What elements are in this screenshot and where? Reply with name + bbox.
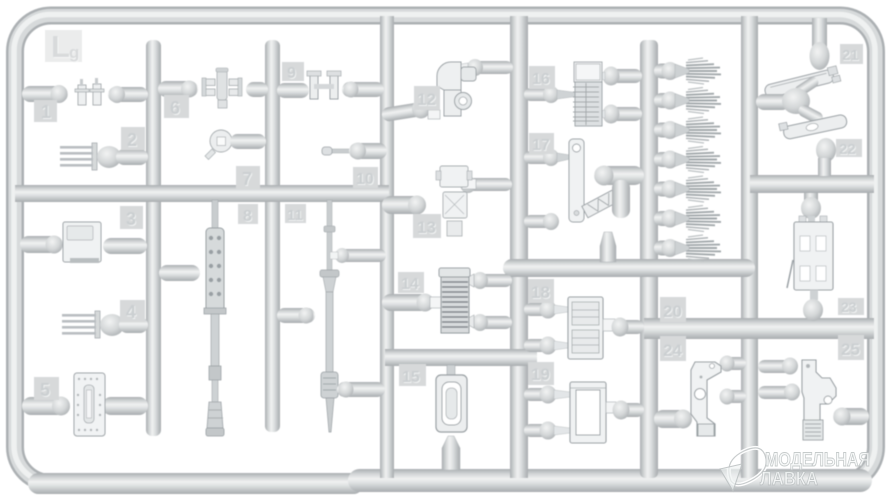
svg-text:8: 8 [243, 208, 252, 225]
svg-text:9: 9 [287, 65, 296, 82]
svg-text:20: 20 [663, 302, 682, 321]
svg-text:14: 14 [401, 276, 419, 293]
svg-text:13: 13 [417, 218, 436, 237]
svg-text:МОДЕЛЬНАЯ: МОДЕЛЬНАЯ [765, 450, 870, 471]
svg-text:4: 4 [126, 302, 136, 322]
svg-text:17: 17 [532, 137, 550, 154]
svg-text:5: 5 [40, 380, 50, 400]
svg-text:16: 16 [532, 71, 550, 88]
svg-text:ЛАВКА: ЛАВКА [760, 469, 818, 490]
svg-text:2: 2 [127, 130, 137, 150]
svg-text:L: L [51, 29, 70, 64]
svg-text:11: 11 [287, 207, 303, 224]
svg-text:19: 19 [531, 365, 550, 384]
svg-text:7: 7 [242, 169, 252, 189]
svg-text:15: 15 [402, 369, 420, 386]
svg-text:18: 18 [531, 283, 550, 302]
svg-text:25: 25 [841, 340, 860, 359]
svg-text:12: 12 [417, 90, 436, 109]
svg-text:g: g [69, 43, 79, 62]
svg-text:6: 6 [170, 98, 180, 118]
svg-text:22: 22 [839, 141, 856, 158]
svg-text:24: 24 [663, 341, 682, 360]
svg-text:3: 3 [126, 209, 136, 229]
svg-text:1: 1 [41, 102, 51, 122]
svg-text:10: 10 [356, 171, 374, 188]
svg-text:23: 23 [841, 299, 857, 315]
svg-text:21: 21 [842, 47, 859, 64]
